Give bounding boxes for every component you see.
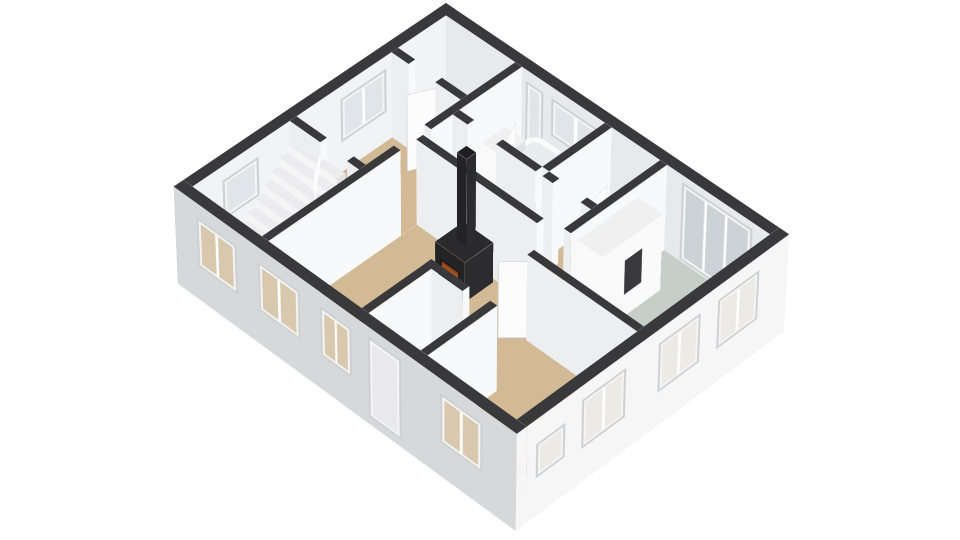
window-green-se-2 [657, 313, 701, 393]
window-green-se-2-glass [661, 320, 696, 385]
window-living-se-glass [585, 375, 622, 441]
window-green-se-1 [716, 270, 759, 349]
window-small-se-glass [540, 430, 561, 471]
window-bedroom-1-nw-glass [345, 76, 383, 136]
window-living-sw-2-glass [324, 314, 348, 371]
window-small-se [536, 423, 566, 479]
stove-chimney-pipe-face-se [466, 153, 476, 247]
floorplan-stage [0, 0, 960, 540]
front-door-glass [372, 344, 398, 433]
window-stair-room-sw-glass [201, 224, 234, 287]
window-living-sw-1-glass [262, 269, 297, 333]
window-living-sw-3-glass [444, 401, 478, 466]
stove-chimney-pipe-face-sw [457, 153, 467, 247]
wardrobe-niche [624, 248, 642, 295]
front-door [368, 336, 402, 440]
window-living-sw-1 [258, 261, 301, 340]
window-living-sw-2 [320, 306, 352, 378]
window-green-se-1-glass [720, 277, 755, 342]
window-stair-nw-glass [227, 164, 256, 213]
